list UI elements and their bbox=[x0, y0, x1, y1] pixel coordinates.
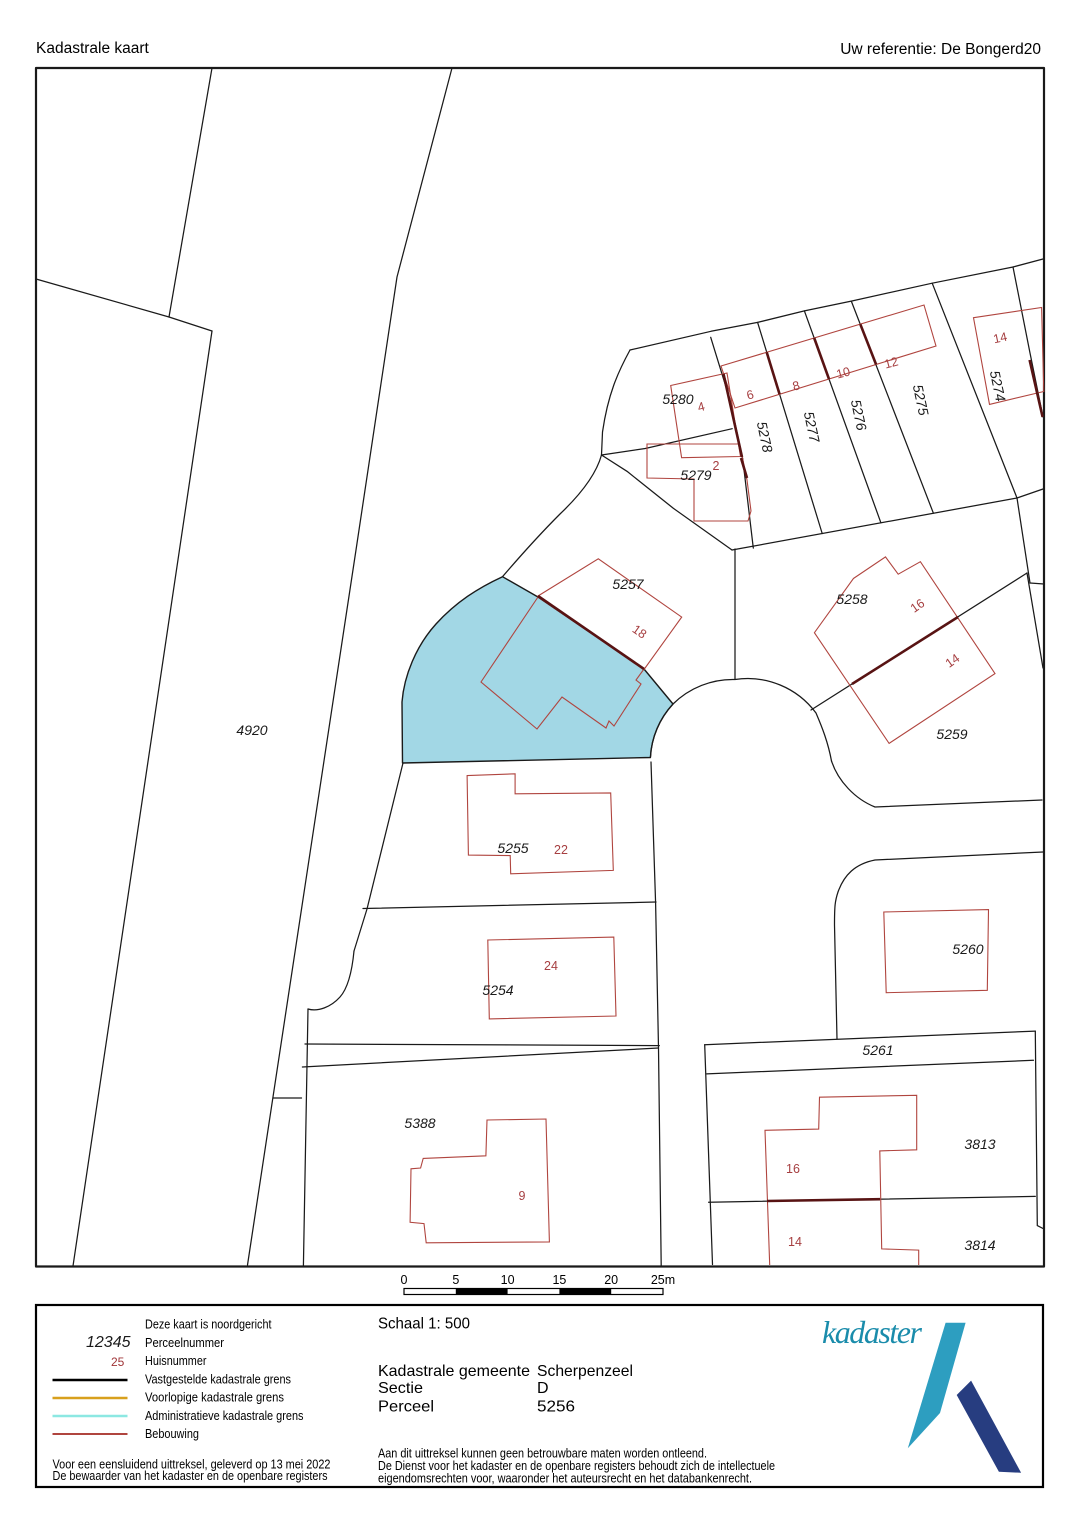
svg-text:14: 14 bbox=[992, 330, 1009, 347]
svg-text:5: 5 bbox=[452, 1273, 459, 1287]
svg-text:3814: 3814 bbox=[964, 1237, 995, 1253]
svg-text:25: 25 bbox=[111, 1355, 125, 1369]
svg-text:14: 14 bbox=[788, 1235, 802, 1249]
svg-text:3813: 3813 bbox=[964, 1136, 995, 1152]
svg-text:D: D bbox=[537, 1380, 549, 1397]
svg-text:0: 0 bbox=[401, 1273, 408, 1287]
svg-text:Bebouwing: Bebouwing bbox=[145, 1427, 199, 1441]
svg-text:10: 10 bbox=[501, 1273, 515, 1287]
svg-text:Deze kaart is noordgericht: Deze kaart is noordgericht bbox=[145, 1318, 272, 1332]
svg-text:2: 2 bbox=[713, 459, 720, 473]
svg-text:Schaal 1: 500: Schaal 1: 500 bbox=[378, 1316, 470, 1333]
svg-text:12345: 12345 bbox=[86, 1334, 131, 1351]
svg-text:5280: 5280 bbox=[662, 391, 693, 407]
svg-text:20: 20 bbox=[604, 1273, 618, 1287]
svg-text:5259: 5259 bbox=[936, 726, 967, 742]
svg-text:Scherpenzeel: Scherpenzeel bbox=[537, 1363, 633, 1380]
svg-text:25m: 25m bbox=[651, 1273, 675, 1287]
svg-text:Vastgestelde kadastrale grens: Vastgestelde kadastrale grens bbox=[145, 1373, 291, 1387]
svg-text:Kadastrale gemeente: Kadastrale gemeente bbox=[378, 1363, 530, 1380]
svg-text:Perceelnummer: Perceelnummer bbox=[145, 1336, 224, 1350]
svg-text:5261: 5261 bbox=[862, 1042, 893, 1058]
svg-text:eigendomsrechten voor, waarond: eigendomsrechten voor, waaronder het aut… bbox=[378, 1472, 752, 1486]
svg-text:Uw referentie: De Bongerd20: Uw referentie: De Bongerd20 bbox=[840, 41, 1041, 58]
svg-text:22: 22 bbox=[554, 843, 568, 857]
svg-text:kadaster: kadaster bbox=[822, 1314, 923, 1350]
svg-text:Sectie: Sectie bbox=[378, 1380, 423, 1397]
svg-text:16: 16 bbox=[786, 1162, 800, 1176]
svg-text:De bewaarder van het kadaster: De bewaarder van het kadaster en de open… bbox=[53, 1469, 328, 1483]
svg-text:5254: 5254 bbox=[482, 982, 513, 998]
svg-text:Huisnummer: Huisnummer bbox=[145, 1354, 207, 1368]
svg-text:5260: 5260 bbox=[952, 941, 983, 957]
svg-text:5256: 5256 bbox=[537, 1399, 575, 1416]
svg-text:Kadastrale kaart: Kadastrale kaart bbox=[36, 40, 150, 57]
svg-text:5257: 5257 bbox=[612, 576, 644, 592]
svg-text:Voorlopige kadastrale grens: Voorlopige kadastrale grens bbox=[145, 1391, 284, 1405]
svg-text:5258: 5258 bbox=[836, 591, 867, 607]
svg-text:24: 24 bbox=[544, 959, 558, 973]
svg-text:5255: 5255 bbox=[497, 840, 528, 856]
svg-text:5279: 5279 bbox=[680, 467, 711, 483]
svg-text:5388: 5388 bbox=[404, 1115, 435, 1131]
svg-text:4920: 4920 bbox=[236, 722, 267, 738]
svg-text:Perceel: Perceel bbox=[378, 1399, 434, 1416]
svg-text:15: 15 bbox=[552, 1273, 566, 1287]
svg-text:9: 9 bbox=[519, 1189, 526, 1203]
svg-text:Administratieve kadastrale gre: Administratieve kadastrale grens bbox=[145, 1409, 304, 1423]
